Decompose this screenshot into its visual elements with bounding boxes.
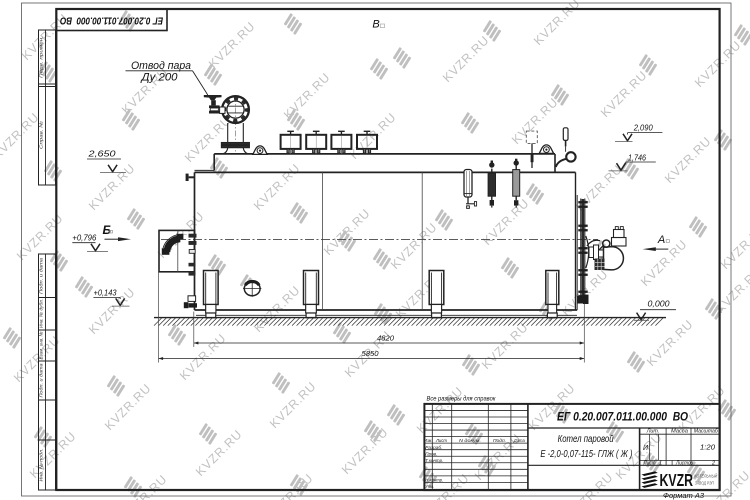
svg-text:Все размеры для справок: Все размеры для справок xyxy=(427,395,497,403)
svg-text:1:20: 1:20 xyxy=(700,442,716,451)
svg-text:Листов: Листов xyxy=(675,460,693,466)
svg-text:Инв. № подл.: Инв. № подл. xyxy=(39,449,45,482)
svg-text:ЗАВОД РЭП: ЗАВОД РЭП xyxy=(695,481,715,486)
svg-text:Дата: Дата xyxy=(513,438,525,443)
svg-text:Ду 200: Ду 200 xyxy=(139,72,178,84)
svg-text:Формат А3: Формат А3 xyxy=(663,493,704,500)
svg-text:Перв. примен.: Перв. примен. xyxy=(39,36,45,78)
svg-text:Лист: Лист xyxy=(643,460,656,466)
svg-text:Пров.: Пров. xyxy=(425,451,437,456)
svg-text:0,000: 0,000 xyxy=(648,299,671,308)
svg-text:4820: 4820 xyxy=(377,334,395,343)
svg-text:Н.контр.: Н.контр. xyxy=(425,478,443,483)
svg-text:Утв.: Утв. xyxy=(425,484,434,489)
svg-text:Т.контр.: Т.контр. xyxy=(425,458,443,463)
svg-text:Справ. №: Справ. № xyxy=(39,121,45,149)
svg-text:ЕГ 0.20.007.011.00.000 ВО: ЕГ 0.20.007.011.00.000 ВО xyxy=(557,411,688,423)
svg-text:ЕГ 0.20.007.011.00.000 ВО: ЕГ 0.20.007.011.00.000 ВО xyxy=(60,14,163,25)
svg-text:+0,796: +0,796 xyxy=(72,234,97,243)
svg-text:Подп.: Подп. xyxy=(493,438,506,443)
svg-text:2: 2 xyxy=(711,460,715,466)
svg-text:Лист: Лист xyxy=(435,438,447,443)
svg-text:1,746: 1,746 xyxy=(628,153,646,162)
svg-text:Инв. № дубл.: Инв. № дубл. xyxy=(39,299,45,328)
svg-text:КОТЕЛЬНЫЙ: КОТЕЛЬНЫЙ xyxy=(694,474,717,479)
svg-text:Взам. инв. №: Взам. инв. № xyxy=(39,332,45,360)
svg-text:Отвод пара: Отвод пара xyxy=(131,60,191,72)
svg-text:Масштаб: Масштаб xyxy=(694,429,719,435)
svg-text:+0,143: +0,143 xyxy=(94,288,118,297)
svg-text:N докум.: N докум. xyxy=(459,438,481,443)
svg-text:Лит.: Лит. xyxy=(646,429,660,435)
svg-text:5850: 5850 xyxy=(362,349,380,358)
svg-text:2,650: 2,650 xyxy=(87,150,116,159)
svg-text:В: В xyxy=(372,19,379,31)
svg-text:Б: Б xyxy=(103,223,112,237)
svg-text:Изм.: Изм. xyxy=(424,438,432,443)
svg-text:Подп. и дата: Подп. и дата xyxy=(39,363,45,397)
svg-text:А: А xyxy=(657,234,665,246)
svg-text:KVZR: KVZR xyxy=(660,470,694,490)
svg-text:Масса: Масса xyxy=(671,429,688,435)
svg-text:Разраб.: Разраб. xyxy=(425,445,442,450)
svg-text:2,090: 2,090 xyxy=(633,123,653,132)
svg-text:Е -2,0-0,07-115- ГЛЖ ( Ж ): Е -2,0-0,07-115- ГЛЖ ( Ж ) xyxy=(540,449,632,460)
svg-text:1: 1 xyxy=(659,460,662,466)
svg-text:Котел паровой: Котел паровой xyxy=(558,434,614,445)
svg-text:Подп. и дата: Подп. и дата xyxy=(39,258,45,294)
